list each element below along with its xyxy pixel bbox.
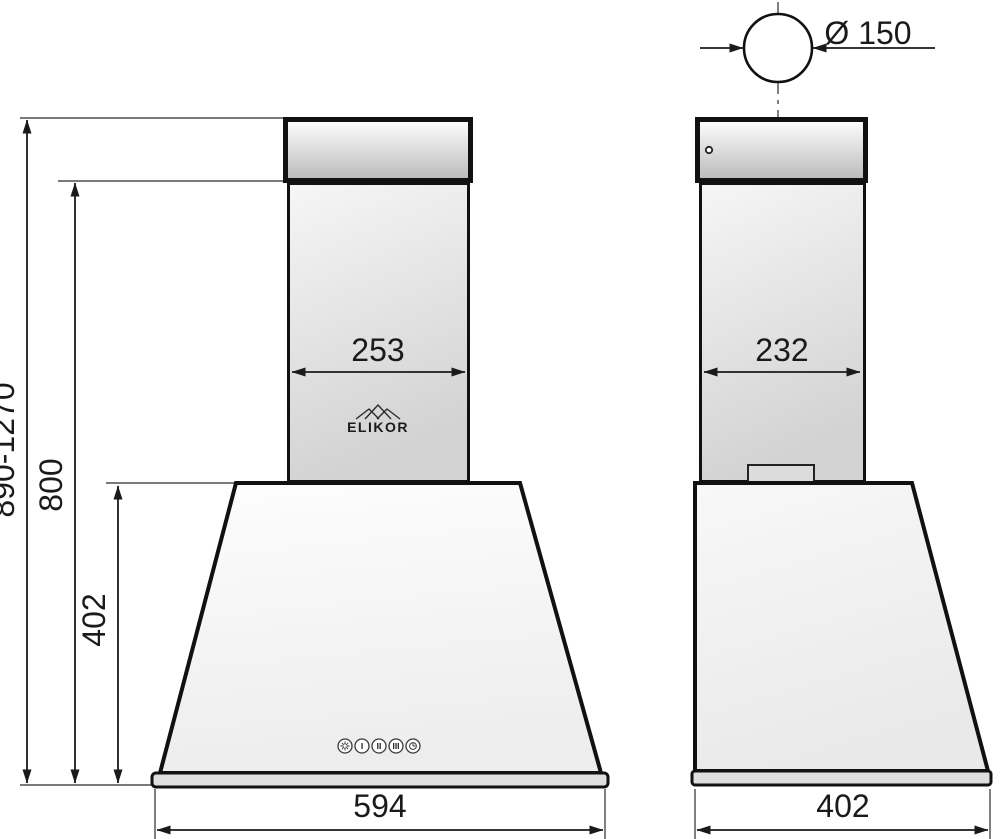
dim-body-height: 402	[76, 486, 118, 783]
dim-duct-diameter: Ø 150	[700, 15, 935, 51]
drawing-page: 890-1270 800 402 253 ELIKOR	[0, 0, 1000, 839]
speed-2-label: II	[377, 741, 382, 751]
chimney-depth-label: 232	[755, 332, 808, 368]
front-baseplate	[152, 773, 608, 787]
technical-drawing: 890-1270 800 402 253 ELIKOR	[0, 0, 1000, 839]
light-button	[338, 739, 352, 753]
timer-button	[406, 739, 420, 753]
overall-height-label: 890-1270	[0, 382, 21, 517]
mounting-bracket	[748, 465, 814, 482]
body-height-label: 402	[76, 593, 112, 646]
body-depth-label: 402	[816, 788, 869, 824]
control-panel: I II III	[338, 739, 420, 753]
height-to-duct-label: 800	[33, 458, 69, 511]
dim-body-width: 594	[155, 788, 605, 839]
duct-diameter-label: Ø 150	[824, 15, 911, 51]
speed-1-button: I	[355, 739, 369, 753]
dim-overall-height: 890-1270	[0, 120, 27, 783]
side-chimney-cap	[698, 120, 866, 181]
speed-3-label: III	[392, 741, 399, 751]
front-view: 890-1270 800 402 253 ELIKOR	[0, 118, 608, 839]
brand-logo-text: ELIKOR	[347, 419, 409, 435]
chimney-width-label: 253	[351, 332, 404, 368]
speed-1-label: I	[361, 741, 363, 751]
dim-body-depth: 402	[695, 788, 990, 839]
front-hood-body	[160, 483, 601, 773]
side-view: Ø 150 232 402	[692, 2, 991, 839]
dim-height-to-duct: 800	[33, 183, 75, 783]
side-hood-body	[695, 483, 988, 771]
screw-hole	[706, 147, 712, 153]
front-chimney-cap	[286, 120, 471, 181]
speed-2-button: II	[372, 739, 386, 753]
speed-3-button: III	[389, 739, 403, 753]
duct-outlet-circle	[744, 14, 812, 82]
body-width-label: 594	[353, 788, 406, 824]
button-ring	[338, 739, 352, 753]
side-baseplate	[692, 771, 991, 785]
